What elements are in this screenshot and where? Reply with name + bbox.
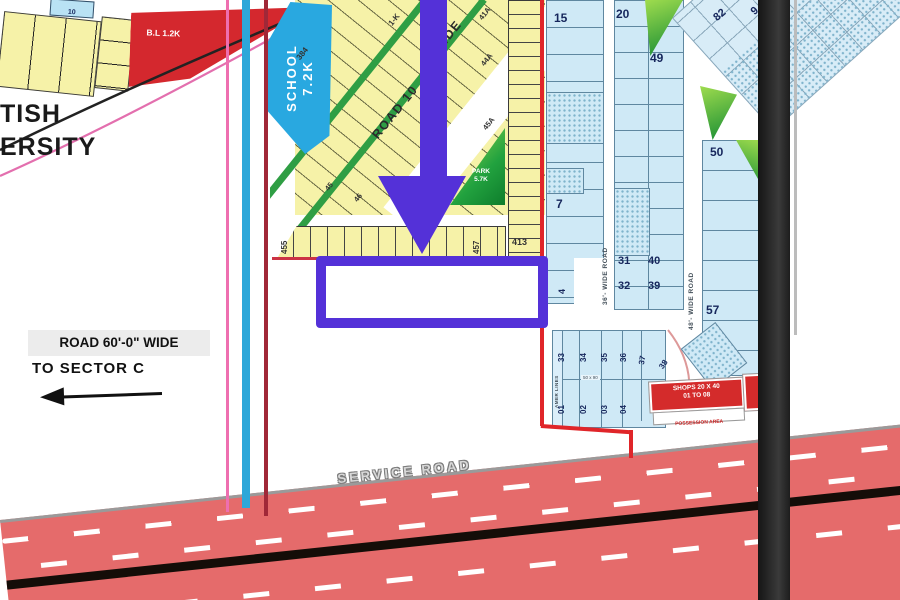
plot-number: 02 bbox=[580, 405, 588, 414]
plot-number: 45A bbox=[482, 116, 496, 131]
plot-number: 31 bbox=[618, 256, 630, 267]
plot-number: 15 bbox=[554, 12, 567, 24]
plot-number: 45 bbox=[324, 181, 335, 192]
plot-number: 7 bbox=[556, 198, 563, 210]
plot-number: 49 bbox=[650, 52, 663, 64]
page-edge-line bbox=[794, 0, 797, 335]
plot-number: 40 bbox=[648, 256, 660, 267]
plot-number: 384 bbox=[295, 46, 310, 61]
map-stage: SERVICE ROAD 10 B.L 1.2K TISH ERSITY ROA… bbox=[0, 0, 900, 600]
plot-number: 01 bbox=[558, 405, 566, 414]
plot-number: 1-K bbox=[387, 12, 401, 27]
plot-number: 413 bbox=[512, 238, 527, 247]
plot-number: 34 bbox=[580, 353, 588, 362]
plot-number: 4 bbox=[558, 289, 567, 294]
plot-number: 457 bbox=[473, 241, 481, 254]
plot-number: 20 bbox=[616, 8, 629, 20]
plot-number: 41A bbox=[478, 6, 492, 21]
plot-number: 04 bbox=[620, 405, 628, 414]
map-border-bar bbox=[758, 0, 790, 600]
plot-number: 46 bbox=[353, 192, 364, 203]
plot-number: 57 bbox=[706, 304, 719, 316]
plot-number: 82 bbox=[712, 7, 728, 23]
plot-number: 455 bbox=[281, 241, 289, 254]
plot-number: 50 bbox=[710, 146, 723, 158]
plot-number: 36 bbox=[620, 353, 628, 362]
plot-number: 44A bbox=[480, 52, 494, 67]
plot-number: 32 bbox=[618, 281, 630, 292]
plot-number: 37 bbox=[638, 355, 647, 365]
plot-number: 39 bbox=[648, 281, 660, 292]
plot-number: 03 bbox=[601, 405, 609, 414]
plot-number: 38 bbox=[658, 359, 670, 371]
plot-number: 33 bbox=[558, 353, 566, 362]
plot-number: 35 bbox=[601, 353, 609, 362]
